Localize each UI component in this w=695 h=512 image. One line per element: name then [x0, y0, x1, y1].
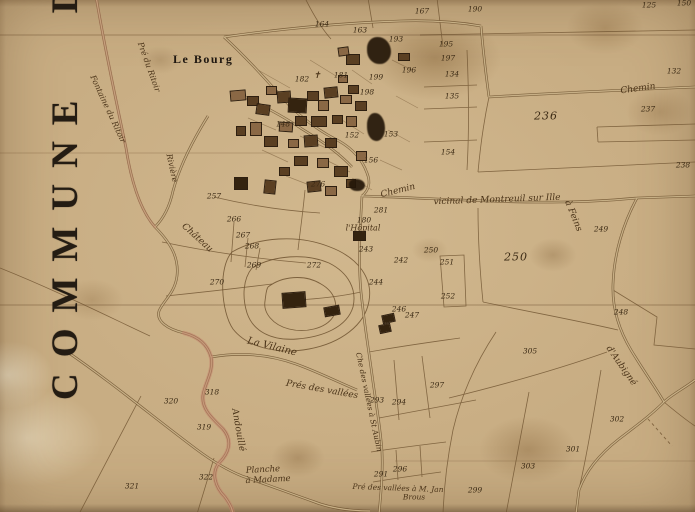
parcel-number: 269	[247, 261, 261, 270]
parcel-number: 302	[610, 415, 624, 424]
footpaths	[648, 419, 672, 446]
parcel-number: 199	[369, 73, 383, 82]
building	[248, 97, 258, 105]
building	[280, 168, 289, 175]
parcel-number: 132	[667, 67, 681, 76]
parcel-number: 252	[441, 292, 455, 301]
parcel-number: 321	[125, 482, 139, 491]
parcel-number: 181	[334, 71, 348, 80]
le-bourg-label: Le Bourg	[173, 52, 233, 67]
parcel-number: 193	[389, 35, 403, 44]
building	[265, 137, 277, 146]
parcel-number: 236	[534, 110, 558, 123]
village-lanes	[248, 60, 418, 190]
cadastral-map: 1501251901671641631931951971961341321352…	[0, 0, 695, 512]
ink-blob	[367, 113, 385, 141]
parcel-number: 320	[164, 397, 178, 406]
parcel-number: 296	[393, 465, 407, 474]
parcel-number: 276	[311, 180, 325, 189]
building	[326, 139, 336, 147]
building	[341, 96, 351, 103]
building	[338, 47, 348, 55]
parcel-number: 242	[394, 256, 408, 265]
parcel-number: 156	[364, 156, 378, 165]
building	[251, 123, 261, 135]
place-label: l'Hôpital	[346, 224, 381, 233]
parcel-number: 134	[445, 70, 459, 79]
place-label: ✝	[313, 71, 321, 81]
parcel-number: 248	[614, 308, 628, 317]
building	[264, 181, 275, 194]
building	[296, 117, 306, 125]
parcel-number: 318	[205, 388, 219, 397]
parcel-number: 319	[197, 423, 211, 432]
parcel-number: 148	[276, 120, 290, 129]
building	[325, 87, 338, 97]
building	[326, 187, 336, 195]
parcel-number: 297	[430, 381, 444, 390]
ink-blob	[349, 179, 365, 191]
building	[295, 157, 307, 165]
building	[237, 127, 245, 135]
building	[354, 232, 365, 240]
map-title-vertical: COMMUNE D	[44, 0, 87, 400]
parcel-number: 238	[676, 161, 690, 170]
parcel-number: 198	[360, 88, 374, 97]
parcel-number: 294	[392, 398, 406, 407]
parcel-number: 268	[245, 242, 259, 251]
parcel-number: 250	[424, 246, 438, 255]
parcel-number: 272	[307, 261, 321, 270]
parcel-number: 163	[353, 26, 367, 35]
parcel-number: 167	[415, 7, 429, 16]
parcel-number: 125	[642, 1, 656, 10]
building	[335, 167, 347, 176]
building	[231, 90, 246, 100]
building	[349, 86, 358, 93]
parcel-number: 299	[468, 486, 482, 495]
building	[289, 140, 298, 147]
parcel-number: 322	[199, 473, 213, 482]
parcel-number: 270	[210, 278, 224, 287]
parcel-number: 153	[384, 130, 398, 139]
parcel-number: 281	[374, 206, 388, 215]
building	[319, 101, 328, 110]
parcel-number: 190	[468, 5, 482, 14]
place-label: Brous	[403, 493, 425, 502]
building	[308, 92, 318, 100]
building	[356, 102, 366, 110]
parcel-number: 257	[207, 192, 221, 201]
building	[347, 55, 359, 64]
building	[399, 54, 409, 60]
parcel-number: 243	[359, 245, 373, 254]
parcel-number: 244	[369, 278, 383, 287]
parcel-number: 182	[295, 75, 309, 84]
parcel-number: 150	[677, 0, 691, 8]
parcel-number: 249	[594, 225, 608, 234]
parcel-number: 152	[345, 131, 359, 140]
stream-tint	[96, 0, 233, 512]
building	[312, 117, 326, 126]
parcel-number: 247	[405, 311, 419, 320]
parcel-number: 237	[641, 105, 655, 114]
parcel-number: 135	[445, 92, 459, 101]
building	[235, 178, 247, 189]
parcel-number: 301	[566, 445, 580, 454]
building	[333, 116, 342, 123]
parcel-number: 196	[402, 66, 416, 75]
parcel-number: 250	[504, 251, 528, 264]
building	[382, 313, 394, 322]
parcel-number: 267	[236, 231, 250, 240]
parcel-number: 197	[441, 54, 455, 63]
parcel-number: 154	[441, 148, 455, 157]
parcel-number: 291	[374, 470, 388, 479]
parcel-number: 266	[227, 215, 241, 224]
parcel-number: 195	[439, 40, 453, 49]
building	[305, 136, 318, 147]
parcel-number: 305	[523, 347, 537, 356]
building	[267, 87, 276, 94]
parcel-number: 164	[315, 20, 329, 29]
building	[288, 98, 306, 112]
building	[318, 159, 328, 167]
building	[256, 104, 269, 115]
building	[347, 117, 356, 126]
building	[379, 324, 390, 333]
building	[283, 292, 306, 308]
parcel-number: 251	[440, 258, 454, 267]
parcel-number: 303	[521, 462, 535, 471]
